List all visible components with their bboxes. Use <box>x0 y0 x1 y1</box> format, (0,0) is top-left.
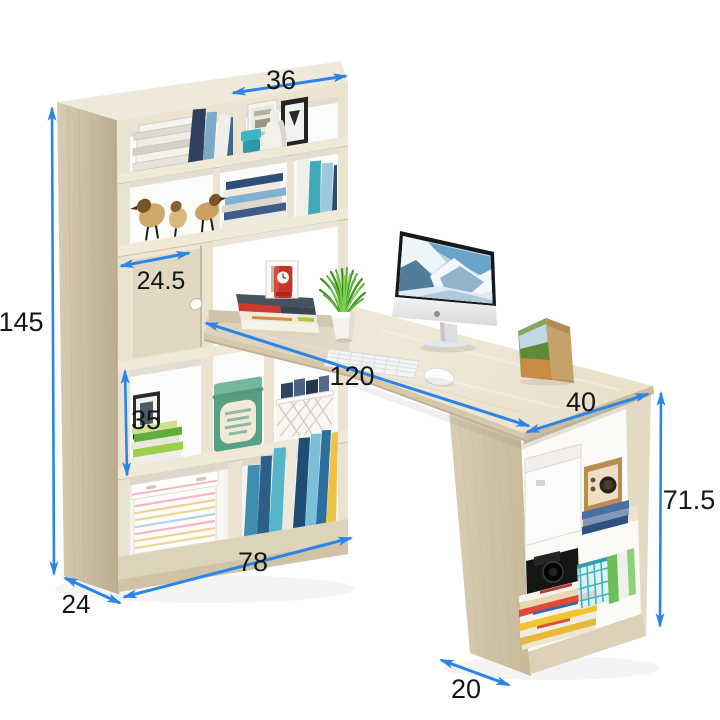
svg-text:24.5: 24.5 <box>137 267 186 295</box>
svg-text:71.5: 71.5 <box>663 485 716 515</box>
svg-text:78: 78 <box>238 547 268 577</box>
svg-text:145: 145 <box>0 307 44 337</box>
svg-text:20: 20 <box>451 674 481 704</box>
svg-text:35: 35 <box>131 405 161 435</box>
svg-text:36: 36 <box>266 65 296 95</box>
svg-text:24: 24 <box>62 589 91 619</box>
svg-text:40: 40 <box>566 387 596 417</box>
svg-text:120: 120 <box>329 361 374 391</box>
